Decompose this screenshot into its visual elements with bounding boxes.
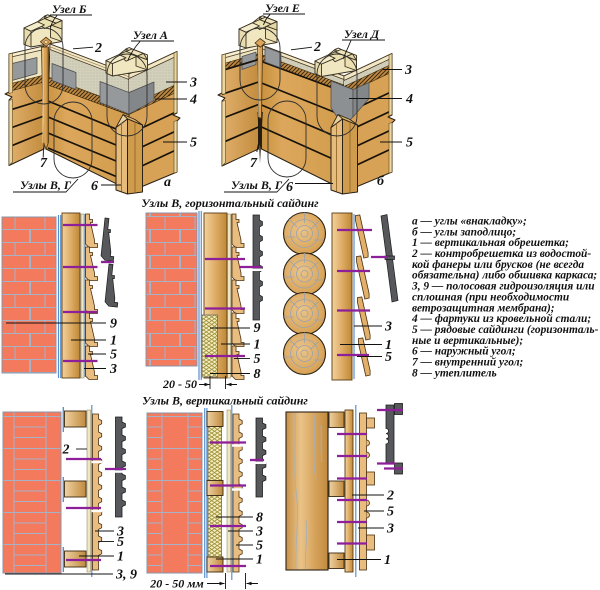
svg-text:8 — утеплитель: 8 — утеплитель (412, 367, 497, 379)
svg-text:Узел Д: Узел Д (344, 27, 380, 41)
svg-text:8: 8 (254, 367, 261, 382)
svg-text:3: 3 (255, 525, 263, 540)
svg-text:5: 5 (406, 136, 413, 151)
svg-text:5: 5 (254, 352, 261, 367)
svg-text:2: 2 (386, 489, 394, 504)
svg-text:5: 5 (385, 350, 392, 365)
svg-text:20 - 50 мм: 20 - 50 мм (149, 577, 203, 590)
svg-text:3: 3 (109, 362, 117, 377)
svg-text:1: 1 (384, 553, 391, 568)
svg-text:6: 6 (286, 180, 293, 195)
svg-text:4: 4 (189, 93, 197, 108)
svg-text:а: а (164, 175, 171, 190)
svg-text:3, 9: 3, 9 (115, 568, 137, 583)
svg-text:Узлы В, Г: Узлы В, Г (231, 178, 283, 192)
svg-text:1: 1 (256, 553, 263, 568)
svg-text:Узел Е: Узел Е (265, 1, 300, 15)
svg-text:Узлы В, вертикальный сайдинг: Узлы В, вертикальный сайдинг (142, 394, 308, 408)
svg-text:5: 5 (117, 535, 124, 550)
svg-text:1: 1 (254, 338, 261, 353)
svg-text:4: 4 (405, 92, 413, 107)
svg-text:2: 2 (62, 443, 70, 458)
svg-text:5: 5 (190, 136, 197, 151)
svg-text:5: 5 (387, 505, 394, 520)
svg-text:1: 1 (117, 550, 124, 565)
svg-text:3: 3 (404, 63, 412, 78)
svg-text:Узлы В, горизонтальный сайдинг: Узлы В, горизонтальный сайдинг (141, 196, 319, 210)
svg-text:20 - 50: 20 - 50 (162, 377, 197, 391)
svg-text:7: 7 (40, 156, 48, 171)
svg-text:Узел А: Узел А (133, 28, 168, 42)
svg-text:3: 3 (189, 76, 197, 91)
svg-text:1: 1 (110, 334, 117, 349)
svg-text:9: 9 (110, 317, 117, 332)
svg-text:3: 3 (386, 522, 394, 537)
svg-text:Узел Б: Узел Б (52, 2, 87, 16)
svg-text:6: 6 (91, 179, 98, 194)
svg-text:9: 9 (254, 321, 261, 336)
svg-text:2: 2 (313, 40, 321, 55)
svg-text:Узлы В, Г: Узлы В, Г (20, 178, 72, 192)
svg-text:5: 5 (256, 539, 263, 554)
svg-text:3: 3 (384, 320, 392, 335)
svg-text:б: б (377, 174, 385, 189)
svg-text:7: 7 (250, 156, 258, 171)
svg-text:5: 5 (110, 348, 117, 363)
svg-text:8: 8 (256, 511, 263, 526)
svg-text:2: 2 (94, 41, 102, 56)
